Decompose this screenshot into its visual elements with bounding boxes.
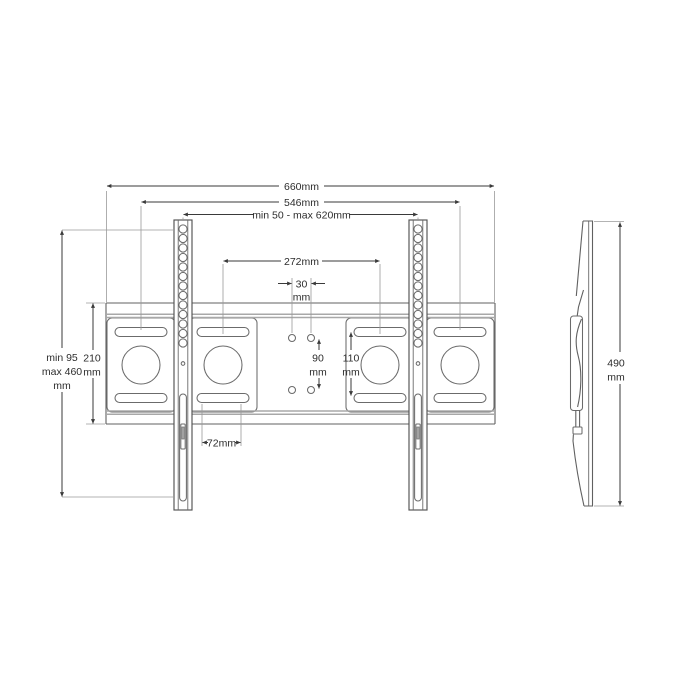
technical-drawing-page: 660mm 546mm min 50 - max 620mm 272mm 30 …: [0, 0, 700, 700]
dim-inner-hole-width: 272mm: [224, 256, 380, 268]
dim-bottom-slot-width: 72mm: [203, 438, 241, 450]
dim-center-hole-vertical: 90 mm: [309, 340, 327, 389]
dim-label-center-hole-vertical-unit: mm: [309, 367, 327, 379]
dim-label-height-range-3: mm: [53, 380, 71, 392]
rail-right-bottom-slot: [415, 394, 422, 501]
dim-mount-hole-width: 546mm: [142, 197, 460, 209]
dim-label-center-hole-vertical-value: 90: [312, 353, 324, 365]
rail-right-holes: [414, 225, 422, 365]
wall-mount-drawing: 660mm 546mm min 50 - max 620mm 272mm 30 …: [0, 0, 700, 700]
dim-plate-height: 210 mm: [83, 304, 101, 424]
dim-label-plate-height-unit: mm: [83, 367, 101, 379]
rail-left-bottom-slot: [180, 394, 187, 501]
dim-label-plate-height-value: 210: [83, 353, 101, 365]
dim-label-bottom-slot-width: 72mm: [207, 438, 236, 450]
dim-label-total-width: 660mm: [284, 181, 319, 193]
dim-center-hole-spacing: 30 mm: [278, 279, 325, 304]
dim-adjust-width-range: min 50 - max 620mm: [184, 210, 418, 222]
dim-total-width: 660mm: [107, 181, 494, 193]
side-bottom-tab: [573, 427, 582, 434]
dim-side-height: 490 mm: [607, 223, 625, 506]
rail-left-holes: [179, 225, 187, 365]
adapter-plate-1: [107, 318, 175, 412]
dim-label-mount-hole-width: 546mm: [284, 197, 319, 209]
rail-right: [409, 220, 427, 510]
dim-label-slot-vertical-unit: mm: [342, 367, 360, 379]
dim-label-height-range-1: min 95: [46, 352, 78, 364]
rail-left: [174, 220, 192, 510]
dim-label-slot-vertical-value: 110: [343, 353, 360, 365]
dim-label-center-hole-spacing-unit: mm: [293, 292, 311, 304]
dim-label-center-hole-spacing-value: 30: [296, 279, 308, 291]
dim-height-range: min 95 max 460 mm: [42, 231, 82, 497]
dim-label-side-height-unit: mm: [607, 372, 625, 384]
adapter-plate-4: [426, 318, 494, 412]
dim-label-inner-hole-width: 272mm: [284, 256, 319, 268]
dim-label-adjust-width-range: min 50 - max 620mm: [252, 210, 351, 222]
side-wall-plate-section: [571, 316, 583, 411]
side-view: [571, 221, 593, 506]
dim-label-height-range-2: max 460: [42, 366, 82, 378]
center-vesa-holes: [289, 335, 315, 394]
dim-label-side-height-value: 490: [607, 358, 625, 370]
